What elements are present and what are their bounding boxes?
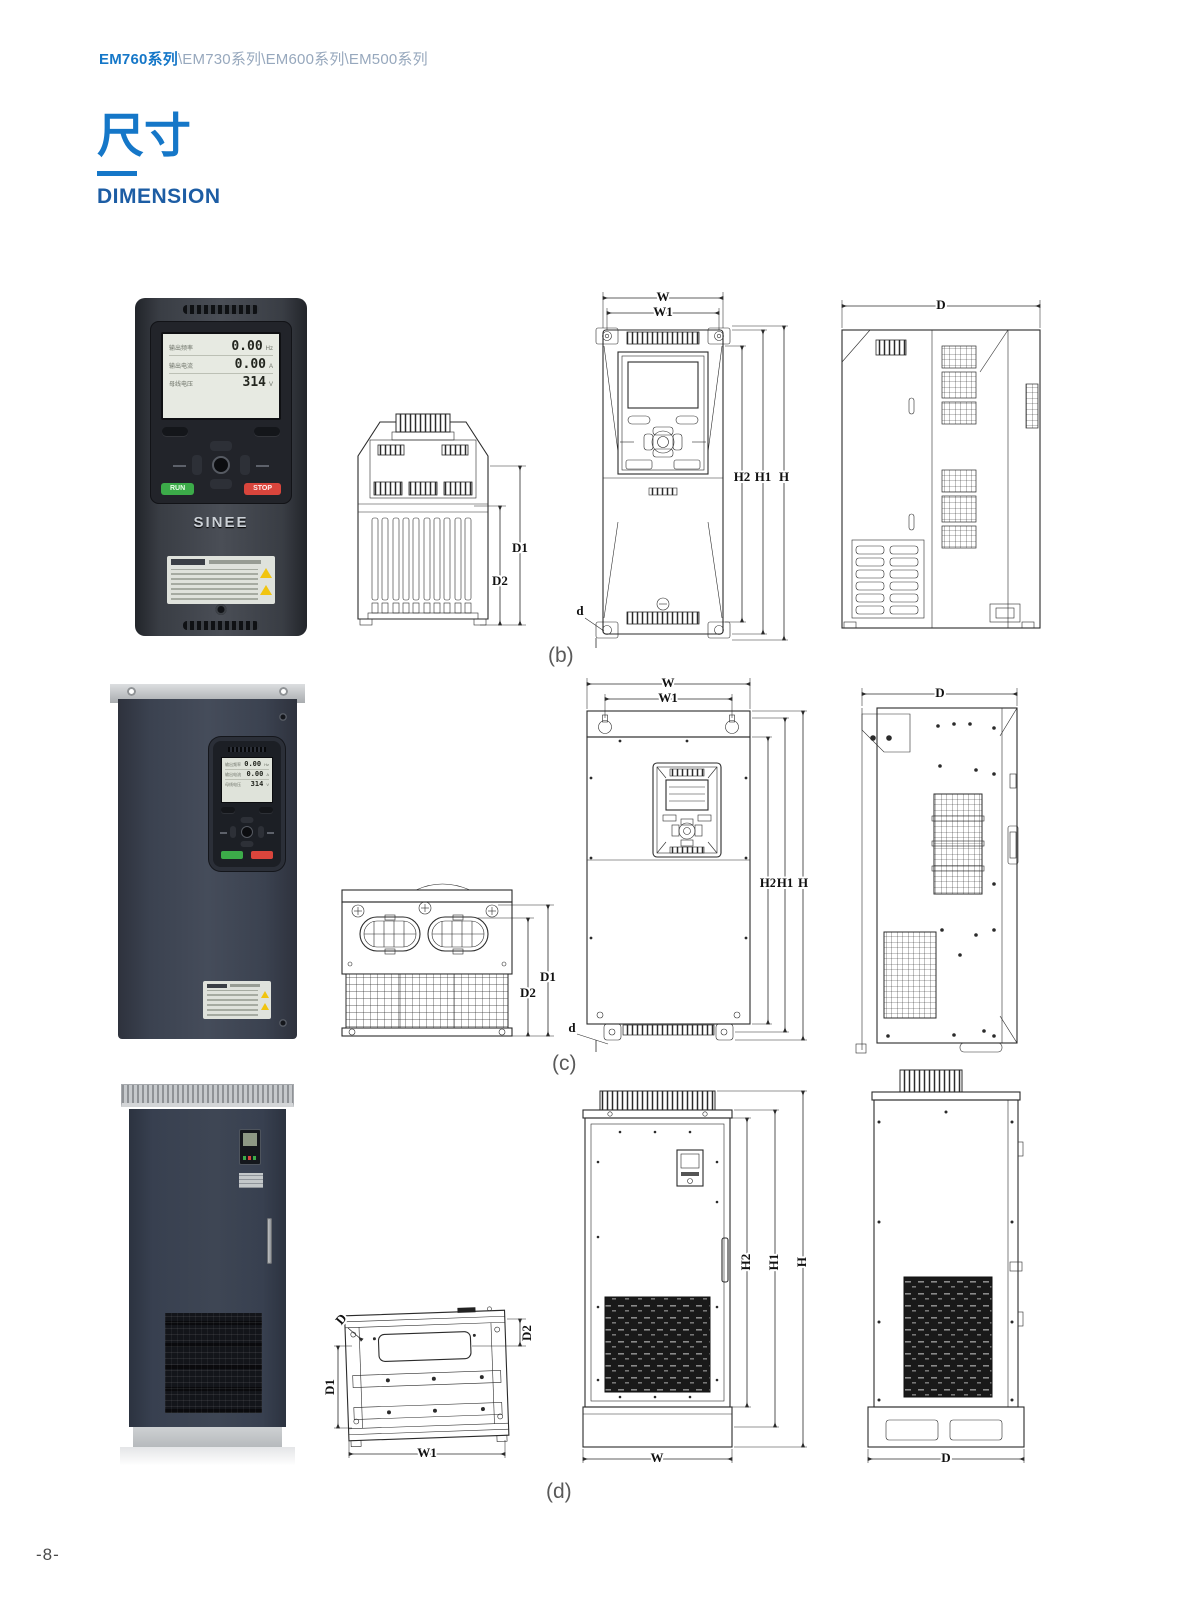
fig-d-front-view-drawing: H2 H1 H W bbox=[565, 1062, 820, 1467]
cabinet-mesh-vent bbox=[165, 1313, 262, 1413]
top-view-art bbox=[342, 884, 512, 1036]
connector bbox=[876, 340, 906, 355]
dim-label-h2: H2 bbox=[738, 1254, 753, 1271]
warning-label-title bbox=[209, 560, 261, 564]
decor-dash-right bbox=[256, 465, 269, 467]
dim-label-w1: W1 bbox=[653, 304, 673, 319]
top-grille bbox=[900, 1070, 962, 1092]
dim-label-d-depth: D bbox=[941, 1450, 950, 1465]
keypad-panel: 输出频率0.00Hz 输出电流0.00A 母线电压314V bbox=[213, 741, 281, 867]
display-row-value: 0.00 bbox=[231, 340, 262, 353]
keypad-keys bbox=[243, 1156, 257, 1160]
dimension-H2: H2 bbox=[752, 737, 776, 1024]
vent-grille bbox=[934, 794, 982, 894]
bottom-vent bbox=[183, 621, 259, 630]
fig-c-top-view-drawing: D2 D1 bbox=[328, 872, 563, 1042]
display-row-label: 母线电压 bbox=[169, 379, 243, 388]
title-underline bbox=[97, 171, 137, 176]
dim-label-d1: D1 bbox=[322, 1379, 337, 1395]
side-view-art bbox=[842, 330, 1040, 628]
bottom-vent bbox=[623, 1025, 714, 1035]
figure-caption-d: (d) bbox=[546, 1480, 572, 1504]
keypad-panel: 输出频率0.00Hz 输出电流0.00A 母线电压314V RUN STOP bbox=[150, 321, 292, 504]
display-row-unit: Hz bbox=[266, 346, 273, 352]
display-row-label: 输出频率 bbox=[169, 343, 231, 352]
display-row-unit: V bbox=[266, 782, 269, 787]
warning-label-text-lines bbox=[171, 569, 258, 600]
brand-mark bbox=[649, 488, 677, 495]
floor-reflection bbox=[120, 1447, 295, 1465]
door-handle bbox=[722, 1238, 728, 1282]
dimension-D: D bbox=[842, 297, 1040, 328]
dim-label-d1: D1 bbox=[512, 540, 528, 555]
enter-key bbox=[241, 826, 253, 838]
brand-logo: SINEE bbox=[135, 514, 307, 531]
fig-b-top-view-drawing: D1 D2 bbox=[348, 406, 528, 636]
esc-key bbox=[259, 807, 273, 813]
cable-cutout bbox=[378, 1331, 471, 1361]
display-row: 输出频率0.00Hz bbox=[169, 338, 273, 356]
run-key: RUN bbox=[161, 483, 194, 495]
dimension-W1: W1 bbox=[605, 690, 732, 718]
display-row-label: 输出电流 bbox=[169, 361, 235, 370]
dimension-D2: D2 bbox=[474, 506, 508, 625]
foot bbox=[474, 619, 486, 625]
display-row-label: 母线电压 bbox=[225, 782, 251, 788]
warning-triangle-icon bbox=[261, 1003, 269, 1010]
dim-label-w: W bbox=[651, 1450, 664, 1465]
front-view-art bbox=[596, 328, 730, 638]
top-fixture bbox=[457, 1307, 475, 1313]
warning-label-header bbox=[207, 984, 227, 988]
mesh-grille bbox=[346, 974, 508, 1028]
side-slots bbox=[852, 540, 924, 618]
display-row-unit: A bbox=[266, 772, 269, 777]
fig-d-side-view-drawing: D bbox=[852, 1062, 1042, 1467]
function-key-row bbox=[221, 807, 273, 813]
dimension-H2: H2 bbox=[725, 346, 750, 622]
top-vent bbox=[627, 332, 699, 344]
cabinet-keypad bbox=[239, 1129, 261, 1165]
fig-b-front-view-drawing: W W1 H2 H1 H d bbox=[560, 282, 800, 657]
catalog-page: { "page": { "breadcrumb_primary": "EM760… bbox=[0, 0, 1178, 1600]
warning-triangle-icon bbox=[260, 585, 272, 595]
mesh-vent bbox=[904, 1277, 992, 1397]
screw bbox=[279, 1019, 287, 1027]
mf-key bbox=[162, 427, 188, 436]
fan-cutout bbox=[428, 915, 488, 954]
left-key bbox=[192, 455, 202, 475]
mounting-bracket bbox=[862, 714, 910, 752]
keypad-vent bbox=[228, 747, 266, 752]
side-view-art bbox=[868, 1070, 1024, 1447]
dim-label-d2: D2 bbox=[519, 1325, 534, 1341]
keypad bbox=[653, 763, 721, 857]
dim-label-h1: H1 bbox=[766, 1254, 781, 1271]
dim-label-d1: D1 bbox=[540, 969, 556, 984]
run-stop-row bbox=[221, 851, 273, 859]
right-key bbox=[258, 826, 264, 838]
display-row: 输出电流0.00A bbox=[169, 356, 273, 374]
title-chinese: 尺寸 bbox=[97, 110, 221, 162]
mounting-hole bbox=[279, 687, 288, 696]
display-row-value: 0.00 bbox=[235, 358, 266, 371]
dim-label-d-depth: D bbox=[935, 685, 944, 700]
dimension-D1: D1 bbox=[480, 466, 528, 625]
dimension-D: D bbox=[868, 1449, 1024, 1465]
right-key bbox=[240, 455, 250, 475]
stop-key: STOP bbox=[244, 483, 281, 495]
dim-label-w1: W1 bbox=[658, 690, 678, 705]
page-number: -8- bbox=[36, 1545, 60, 1565]
decor-dash-right bbox=[267, 832, 274, 834]
mf-key bbox=[221, 807, 235, 813]
front-view-art bbox=[583, 1091, 732, 1447]
up-key bbox=[241, 817, 254, 823]
dim-label-h1: H1 bbox=[777, 875, 794, 890]
enter-key bbox=[212, 456, 230, 474]
lcd-display bbox=[243, 1133, 257, 1146]
keypad bbox=[618, 352, 708, 474]
display-row: 输出频率0.00Hz bbox=[225, 760, 269, 770]
warning-label-text-lines bbox=[207, 990, 258, 1016]
warning-label bbox=[203, 981, 271, 1019]
drive-body: 输出频率0.00Hz 输出电流0.00A 母线电压314V RUN STOP S… bbox=[135, 298, 307, 636]
warning-triangle-icon bbox=[260, 568, 272, 578]
control-terminal-block bbox=[396, 414, 450, 432]
vent-grille bbox=[884, 932, 936, 1018]
dim-label-d2: D2 bbox=[520, 985, 536, 1000]
display-row-value: 0.00 bbox=[246, 771, 263, 778]
handle-latch bbox=[1010, 1262, 1022, 1271]
down-key bbox=[241, 841, 254, 847]
dimension-d: d bbox=[568, 1020, 608, 1052]
base-pedestal bbox=[583, 1407, 732, 1447]
warning-label-header bbox=[171, 559, 205, 565]
breadcrumb-primary: EM760系列 bbox=[99, 51, 178, 68]
lcd-display: 输出频率0.00Hz 输出电流0.00A 母线电压314V bbox=[161, 332, 281, 420]
dimension-H: H bbox=[717, 1091, 809, 1447]
display-row-unit: A bbox=[269, 364, 273, 370]
display-row-value: 314 bbox=[251, 781, 264, 788]
dim-label-h2: H2 bbox=[734, 469, 751, 484]
drive-body: 输出频率0.00Hz 输出电流0.00A 母线电压314V bbox=[118, 699, 297, 1039]
fan-cutout bbox=[360, 915, 420, 954]
display-row: 输出电流0.00A bbox=[225, 770, 269, 780]
dim-label-h1: H1 bbox=[755, 469, 772, 484]
cabinet-top-vent bbox=[121, 1084, 294, 1107]
esc-key bbox=[254, 427, 280, 436]
lcd-display bbox=[628, 362, 698, 408]
dim-label-d2: D2 bbox=[492, 573, 508, 588]
display-row-unit: V bbox=[269, 382, 273, 388]
dimension-d: d bbox=[576, 603, 604, 648]
product-photo-cabinet-drive bbox=[120, 1075, 295, 1465]
decor-dash-left bbox=[220, 832, 227, 834]
power-terminal bbox=[374, 482, 402, 495]
dim-label-w: W bbox=[662, 675, 675, 690]
bottom-vent bbox=[627, 612, 699, 624]
dim-label-h: H bbox=[794, 1257, 809, 1267]
decor-dash-left bbox=[173, 465, 186, 467]
heatsink-fins bbox=[372, 518, 471, 613]
dim-label-h2: H2 bbox=[760, 875, 777, 890]
phillips-screws bbox=[352, 902, 498, 917]
fig-b-side-view-drawing: D bbox=[812, 288, 1047, 638]
top-vent bbox=[183, 305, 259, 314]
nameplate-sticker bbox=[239, 1173, 263, 1188]
run-key bbox=[221, 851, 243, 859]
vent-grilles bbox=[942, 346, 976, 548]
stop-key bbox=[251, 851, 273, 859]
hinge bbox=[1018, 1142, 1023, 1156]
product-photo-high-power-drive: 输出频率0.00Hz 输出电流0.00A 母线电压314V bbox=[105, 682, 310, 1042]
dimension-W: W bbox=[583, 1449, 732, 1465]
warning-label bbox=[167, 556, 275, 604]
fig-d-top-view-drawing: D D1 D2 W1 bbox=[322, 1288, 532, 1468]
warning-label-title bbox=[230, 984, 260, 987]
display-row: 母线电压314V bbox=[169, 374, 273, 391]
edge-screws bbox=[590, 740, 748, 940]
base-pedestal bbox=[868, 1407, 1024, 1447]
side-view-art bbox=[856, 708, 1018, 1053]
top-grille bbox=[600, 1091, 715, 1110]
dimension-W1: W1 bbox=[349, 1440, 505, 1460]
lcd-display: 输出频率0.00Hz 输出电流0.00A 母线电压314V bbox=[221, 757, 273, 803]
dim-label-d-depth: D bbox=[332, 1311, 350, 1328]
display-row-label: 输出频率 bbox=[225, 762, 244, 768]
dim-label-d-depth: D bbox=[936, 297, 945, 312]
up-key bbox=[210, 441, 232, 451]
product-photo-compact-drive: 输出频率0.00Hz 输出电流0.00A 母线电压314V RUN STOP S… bbox=[135, 298, 307, 636]
front-view-art bbox=[587, 711, 750, 1040]
figure-caption-b: (b) bbox=[548, 644, 574, 668]
mesh-vent bbox=[605, 1297, 710, 1392]
screw bbox=[216, 604, 227, 615]
dim-label-h: H bbox=[779, 469, 789, 484]
fig-c-front-view-drawing: W W1 H2 H1 H d bbox=[560, 668, 810, 1068]
power-terminal bbox=[409, 482, 437, 495]
foot bbox=[360, 619, 372, 625]
run-stop-row: RUN STOP bbox=[161, 483, 281, 495]
dimension-D: D bbox=[862, 685, 1017, 706]
dim-label-w1: W1 bbox=[417, 1445, 437, 1460]
dimension-W1: W1 bbox=[607, 304, 719, 330]
section-title: 尺寸 DIMENSION bbox=[97, 110, 221, 209]
lcd-display bbox=[666, 780, 708, 810]
top-view-art bbox=[358, 414, 488, 625]
display-row-unit: Hz bbox=[264, 762, 269, 767]
dim-label-d: d bbox=[568, 1020, 576, 1035]
dim-label-d: d bbox=[576, 603, 584, 618]
dim-label-w: W bbox=[657, 289, 670, 304]
keypad bbox=[677, 1150, 703, 1186]
mounting-hole bbox=[127, 687, 136, 696]
breadcrumb-rest: \EM730系列\EM600系列\EM500系列 bbox=[178, 51, 428, 68]
fan-block bbox=[1026, 384, 1038, 428]
title-english: DIMENSION bbox=[97, 185, 221, 209]
cabinet-base bbox=[133, 1427, 282, 1447]
hinge bbox=[1018, 1312, 1023, 1326]
door-handle bbox=[267, 1218, 272, 1264]
dim-label-h: H bbox=[798, 875, 808, 890]
display-row: 母线电压314V bbox=[225, 780, 269, 789]
dimension-H2: H2 bbox=[732, 1118, 753, 1407]
left-key bbox=[230, 826, 236, 838]
display-row-value: 0.00 bbox=[244, 761, 261, 768]
arrow-key-cluster bbox=[230, 817, 264, 847]
display-row-value: 314 bbox=[243, 376, 266, 389]
power-terminal bbox=[444, 482, 472, 495]
top-view-art bbox=[344, 1306, 509, 1447]
fig-c-side-view-drawing: D bbox=[842, 678, 1042, 1063]
function-key-row bbox=[162, 427, 280, 436]
screw bbox=[279, 713, 287, 721]
display-row-label: 输出电流 bbox=[225, 772, 246, 778]
breadcrumb: EM760系列\EM730系列\EM600系列\EM500系列 bbox=[99, 48, 428, 69]
warning-triangle-icon bbox=[261, 991, 269, 998]
